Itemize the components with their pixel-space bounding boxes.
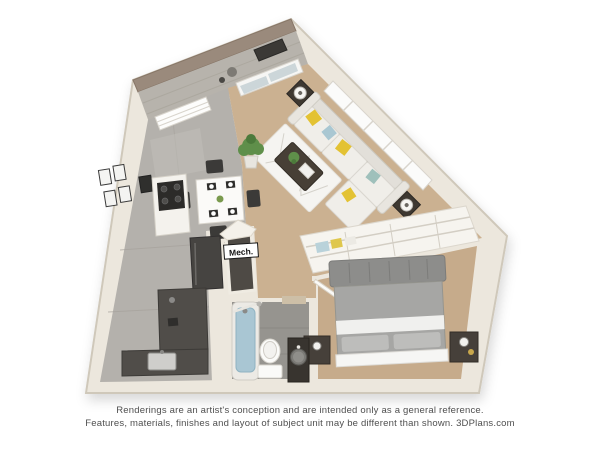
sink-faucet bbox=[160, 350, 164, 354]
plate bbox=[228, 182, 233, 187]
counter-item bbox=[168, 318, 179, 327]
bed bbox=[329, 255, 450, 367]
dining-chair bbox=[246, 189, 260, 207]
kitchen-counter bbox=[158, 288, 208, 353]
picture-frame bbox=[118, 186, 131, 203]
shower-head bbox=[257, 302, 262, 307]
picture-frame bbox=[104, 190, 117, 207]
plate bbox=[230, 209, 235, 214]
plant-foliage bbox=[252, 143, 264, 155]
dining-chair bbox=[206, 159, 224, 173]
floor-plan-rendering: Mech. bbox=[0, 0, 600, 450]
nightstand-decor bbox=[468, 349, 474, 355]
floor-plan-page: Mech. bbox=[0, 0, 600, 450]
plate bbox=[211, 211, 216, 216]
balcony-planter bbox=[227, 67, 237, 77]
bed-pillow bbox=[341, 334, 390, 352]
plant-foliage bbox=[238, 144, 250, 156]
toilet-seat bbox=[264, 342, 277, 359]
disclaimer-line2: Features, materials, finishes and layout… bbox=[0, 417, 600, 430]
refrigerator-handle bbox=[195, 243, 196, 285]
kitchen-sink bbox=[148, 353, 176, 370]
disclaimer-line1: Renderings are an artist's conception an… bbox=[0, 404, 600, 417]
disclaimer: Renderings are an artist's conception an… bbox=[0, 404, 600, 430]
burner bbox=[162, 198, 168, 204]
counter-item bbox=[169, 297, 175, 303]
mech-label: Mech. bbox=[229, 246, 254, 258]
bathtub-water bbox=[236, 308, 255, 372]
plant-pot bbox=[244, 156, 258, 168]
mech-closet-interior bbox=[226, 231, 255, 293]
picture-frame bbox=[98, 169, 111, 186]
balcony-planter bbox=[219, 77, 225, 83]
sink-faucet bbox=[297, 345, 301, 349]
alarm-clock bbox=[460, 338, 469, 347]
toilet-tank bbox=[258, 365, 282, 378]
bathroom-door-opening bbox=[282, 296, 306, 304]
alarm-clock bbox=[313, 342, 321, 350]
picture-frame bbox=[113, 164, 126, 181]
burner bbox=[174, 184, 180, 190]
cooktop bbox=[157, 180, 185, 211]
burner bbox=[161, 186, 167, 192]
burner bbox=[175, 196, 181, 202]
table-centerpiece bbox=[217, 196, 224, 203]
bed-pillow bbox=[393, 331, 442, 349]
plate bbox=[209, 184, 214, 189]
vessel-sink bbox=[293, 352, 304, 363]
picture-frame-dark bbox=[139, 175, 153, 193]
plant-foliage bbox=[246, 134, 256, 144]
